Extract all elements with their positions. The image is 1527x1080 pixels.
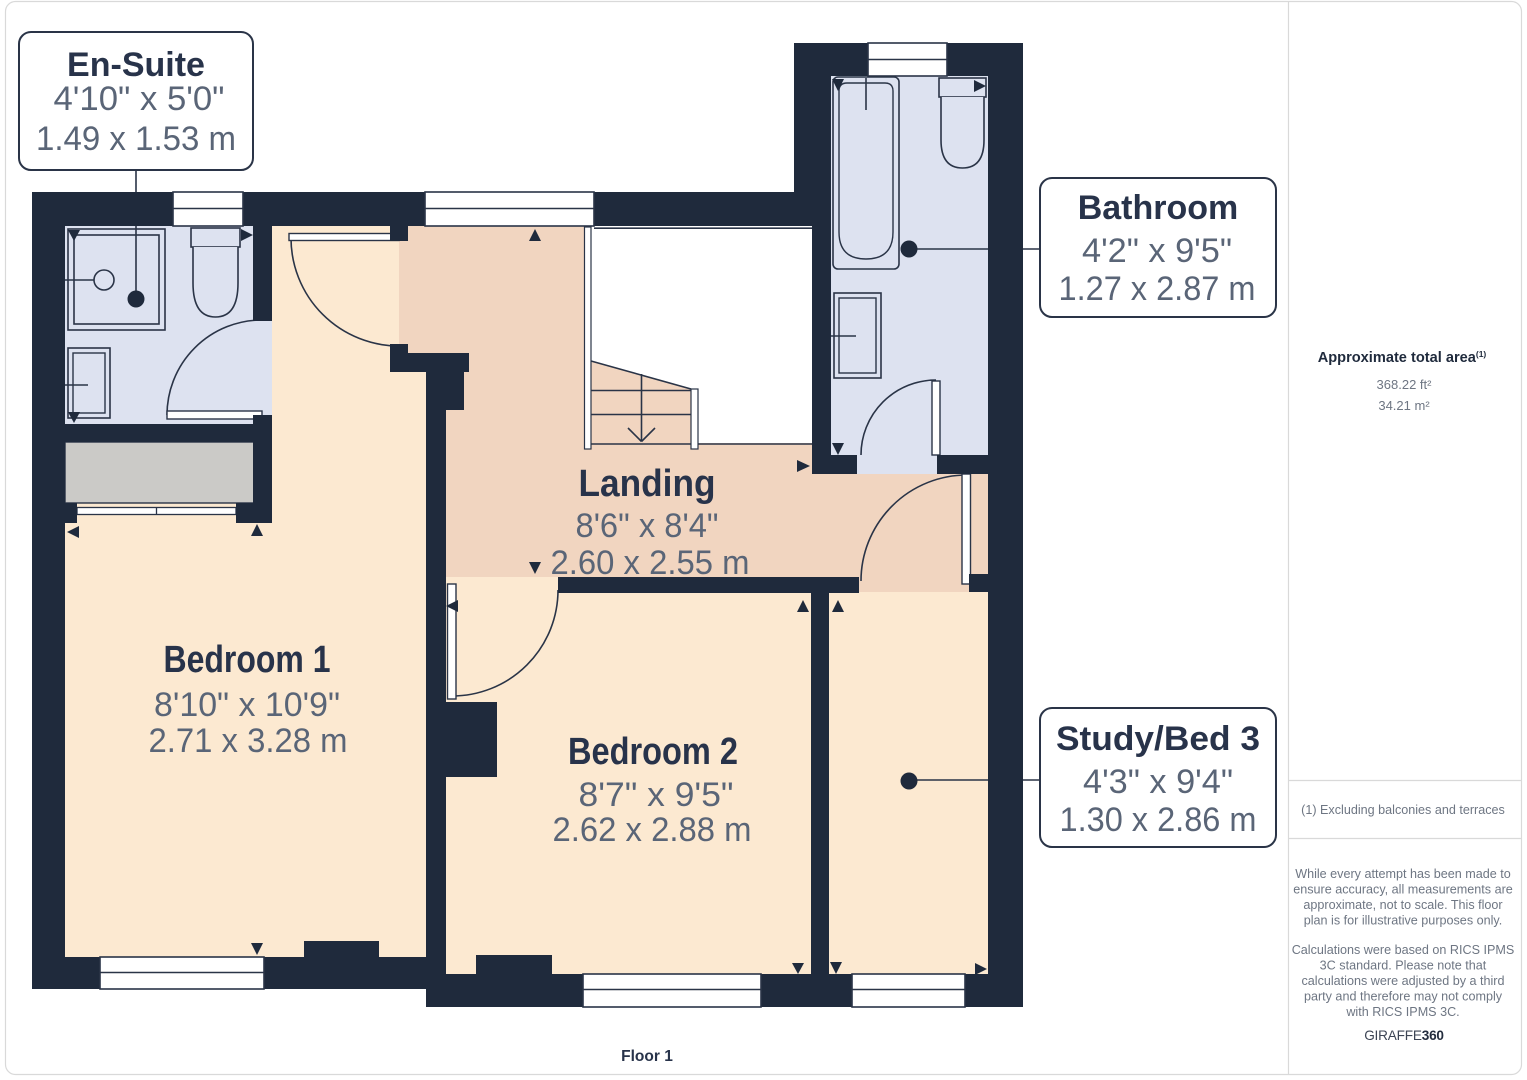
svg-text:(1) Excluding balconies and te: (1) Excluding balconies and terraces [1301, 803, 1505, 817]
svg-text:with RICS IPMS 3C.: with RICS IPMS 3C. [1345, 1005, 1459, 1019]
svg-text:1.49 x 1.53 m: 1.49 x 1.53 m [36, 120, 236, 158]
svg-text:1.30 x 2.86 m: 1.30 x 2.86 m [1060, 801, 1257, 839]
svg-text:2.60 x 2.55 m: 2.60 x 2.55 m [551, 544, 750, 582]
svg-text:8'6" x 8'4": 8'6" x 8'4" [576, 507, 719, 545]
svg-text:4'2" x 9'5": 4'2" x 9'5" [1082, 232, 1232, 270]
svg-text:2.71 x 3.28 m: 2.71 x 3.28 m [149, 722, 348, 760]
svg-text:1.27 x 2.87 m: 1.27 x 2.87 m [1059, 270, 1256, 308]
svg-text:368.22 ft²: 368.22 ft² [1377, 377, 1433, 392]
svg-text:34.21 m²: 34.21 m² [1378, 398, 1430, 413]
svg-text:party and therefore may not co: party and therefore may not comply [1304, 990, 1503, 1004]
svg-text:8'10" x 10'9": 8'10" x 10'9" [154, 686, 340, 724]
svg-text:Bedroom 1: Bedroom 1 [164, 639, 331, 681]
svg-text:Bedroom 2: Bedroom 2 [568, 731, 738, 773]
svg-text:Study/Bed 3: Study/Bed 3 [1056, 720, 1260, 758]
svg-text:GIRAFFE360: GIRAFFE360 [1364, 1028, 1444, 1043]
svg-text:4'3" x 9'4": 4'3" x 9'4" [1083, 763, 1233, 801]
svg-text:Floor 1: Floor 1 [621, 1048, 673, 1065]
svg-text:Calculations were based on RIC: Calculations were based on RICS IPMS [1292, 943, 1515, 957]
svg-text:Landing: Landing [579, 463, 716, 505]
svg-text:plan is for illustrative purpo: plan is for illustrative purposes only. [1304, 914, 1503, 928]
svg-text:approximate, not to scale. Thi: approximate, not to scale. This floor [1303, 898, 1502, 912]
svg-text:ensure accuracy, all measureme: ensure accuracy, all measurements are [1293, 883, 1513, 897]
svg-text:Approximate total area(1): Approximate total area(1) [1318, 349, 1487, 366]
svg-text:4'10" x 5'0": 4'10" x 5'0" [54, 80, 225, 118]
svg-text:2.62 x 2.88 m: 2.62 x 2.88 m [553, 811, 752, 849]
svg-text:3C standard. Please note that: 3C standard. Please note that [1320, 959, 1487, 973]
svg-text:calculations were adjusted by: calculations were adjusted by a third [1301, 974, 1504, 988]
svg-text:8'7" x 9'5": 8'7" x 9'5" [579, 776, 734, 814]
svg-text:En-Suite: En-Suite [67, 46, 205, 84]
svg-text:While every attempt has been m: While every attempt has been made to [1295, 867, 1511, 881]
svg-text:Bathroom: Bathroom [1078, 189, 1239, 227]
